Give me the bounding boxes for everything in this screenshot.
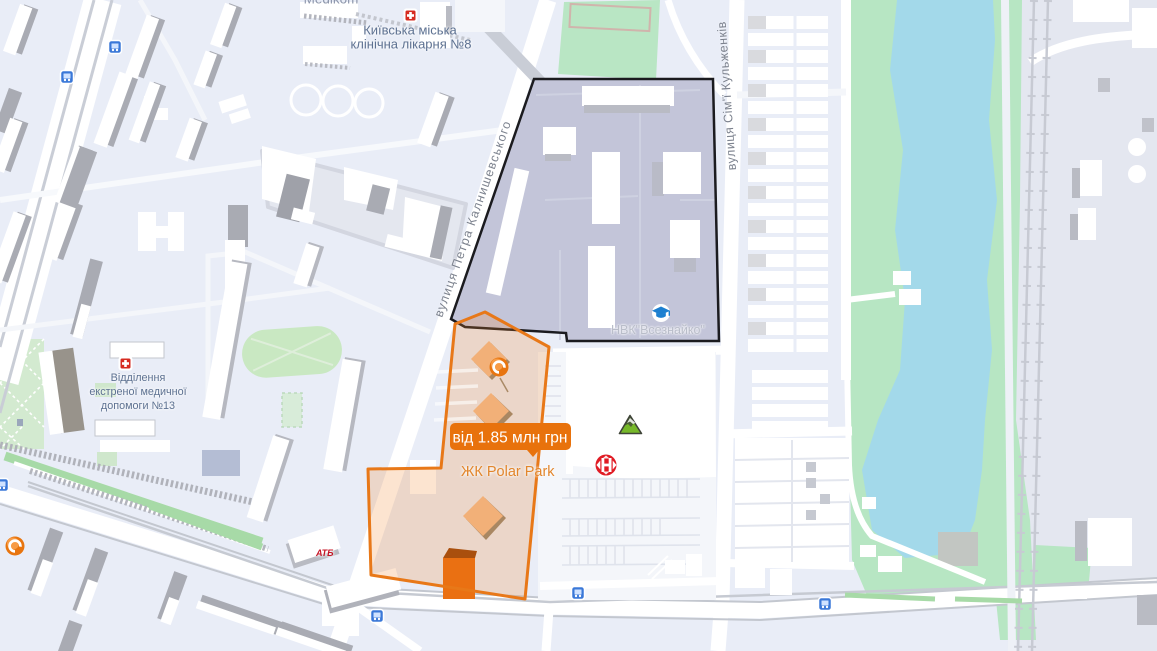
svg-text:клінічна лікарня №8: клінічна лікарня №8 bbox=[350, 37, 471, 52]
svg-text:Medikom: Medikom bbox=[304, 0, 359, 7]
svg-text:Відділення: Відділення bbox=[111, 372, 166, 384]
svg-text:екстреної медичної: екстреної медичної bbox=[89, 386, 186, 398]
svg-text:Київська міська: Київська міська bbox=[363, 23, 457, 38]
svg-text:допомоги №13: допомоги №13 bbox=[101, 400, 175, 412]
svg-text:від 1.85 млн грн: від 1.85 млн грн bbox=[453, 430, 568, 447]
svg-text:НВК"Всезнайко": НВК"Всезнайко" bbox=[611, 323, 705, 337]
svg-text:ЖК Polar Park: ЖК Polar Park bbox=[461, 464, 555, 480]
svg-text:АТБ: АТБ bbox=[315, 548, 334, 558]
